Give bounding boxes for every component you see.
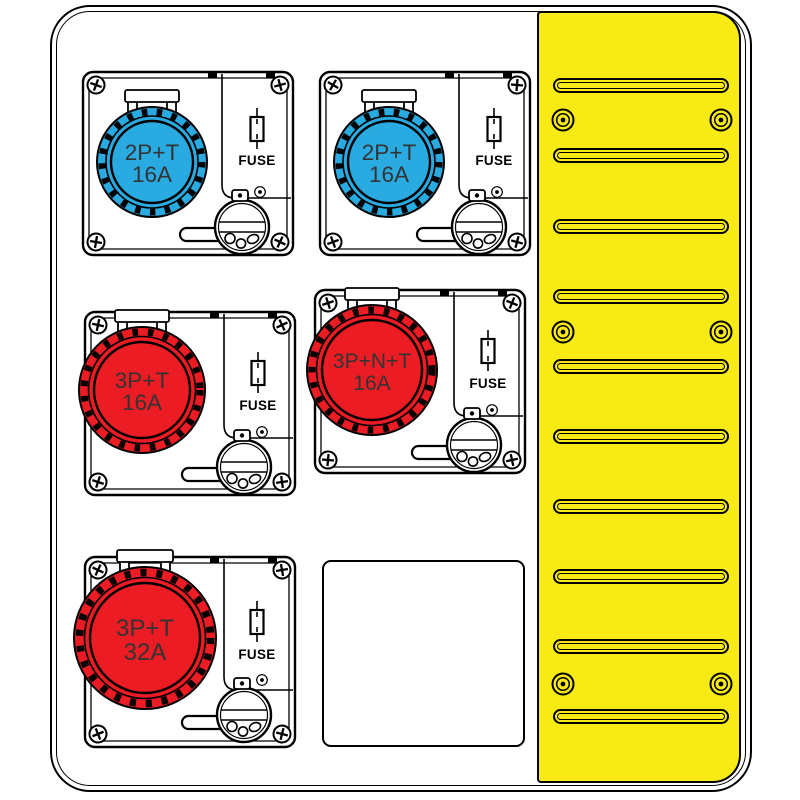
amp-label: 16A [132, 162, 172, 187]
distribution-board-illustration: FUSE 2P+T 16A [0, 0, 800, 800]
blank-plate [322, 560, 525, 747]
fuse-label: FUSE [475, 153, 512, 168]
vent-slot [553, 359, 729, 374]
fuse-label: FUSE [469, 376, 506, 391]
vent-panel [537, 11, 741, 783]
panel-screw-icon [706, 105, 736, 135]
amp-label: 16A [122, 390, 162, 415]
vent-slot [553, 429, 729, 444]
corner-screw-icon [508, 76, 526, 94]
socket-module-2pt-16a-2: FUSE 2P+T 16A [290, 42, 560, 292]
amp-label: 16A [369, 162, 409, 187]
top-tab [208, 73, 217, 78]
panel-screw-icon [706, 317, 736, 347]
vent-slot [553, 78, 729, 93]
socket-label: 3P+T [116, 615, 174, 642]
fuse-label: FUSE [238, 153, 275, 168]
fuse-label: FUSE [239, 398, 276, 413]
vent-slot [553, 219, 729, 234]
top-tab [266, 73, 275, 78]
panel-screw-icon [548, 669, 578, 699]
socket-module-2pt-16a-1: FUSE 2P+T 16A [53, 42, 323, 292]
vent-slot [553, 569, 729, 584]
vent-slot [553, 709, 729, 724]
fuse-label: FUSE [238, 647, 275, 662]
vent-slot [553, 639, 729, 654]
panel-screw-icon [706, 669, 736, 699]
socket-module-3pnt-16a: FUSE 3P+N+T 1 [285, 260, 555, 510]
vent-slot [553, 289, 729, 304]
amp-label: 32A [124, 639, 167, 666]
socket-label: 3P+N+T [333, 350, 411, 373]
vent-slot [553, 148, 729, 163]
corner-screw-icon [319, 451, 337, 469]
amp-label: 16A [353, 372, 390, 395]
socket-module-3pt-32a: FUSE 3P+T 32A [55, 527, 325, 787]
vent-slot [553, 499, 729, 514]
